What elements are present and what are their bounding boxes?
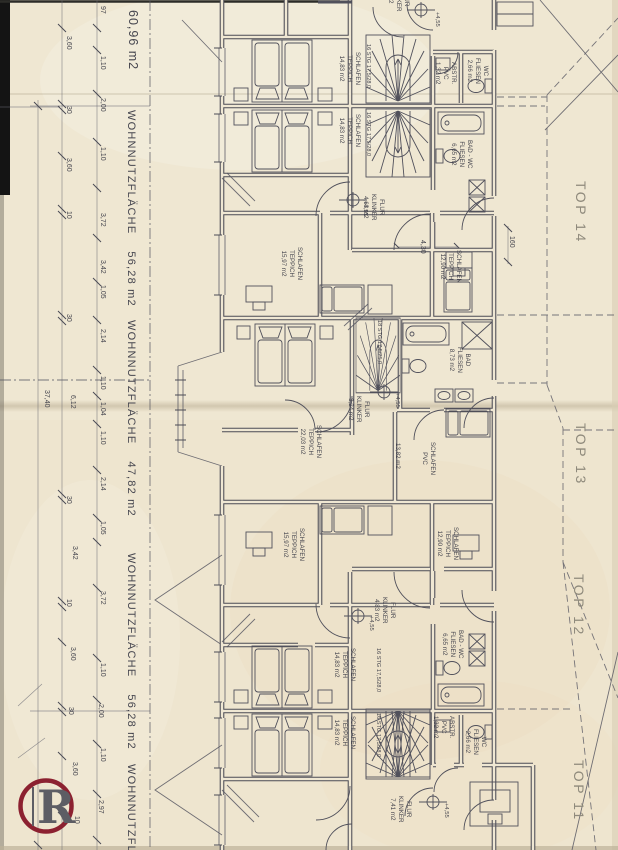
dim-30-a: 30 [64,106,73,114]
area-top: 60,96 m2 [125,10,142,70]
room-badwc-d: BAD - WC FLIESEN 6,65 m2 [439,630,464,659]
stairs-note-d: 16 STG 17,5/28,0 [374,648,381,692]
dim-110-c: 1,10 [98,376,107,390]
elev-b: +4,55 [360,201,368,216]
dim-214-b: 2,14 [98,477,107,491]
dim-104: 1,04 [98,402,107,416]
room-abstr-b: ABSTR. PVC 1,32 m2 [430,716,455,738]
elev-c: +4,55 [392,393,400,408]
elev-d: +4,55 [366,616,374,631]
dim-97: 97 [98,6,107,14]
room-flur-e: FLUR KLINKER 7,41 m2 [387,796,412,822]
room-schlafen-pvc: SCHLAFEN PVC [420,442,436,475]
dim-110-e: 1,10 [98,663,107,677]
dim-342-b: 3,42 [70,546,79,560]
dim-110-b: 1,10 [98,147,107,161]
dim-200-b: 2,00 [96,704,105,718]
dim-110-d: 1,10 [98,431,107,445]
room-wc-a: WC FLIESEN 2,66 m2 [464,58,489,84]
dim-342-a: 3,42 [98,260,107,274]
room-schlafen-c: SCHLAFEN TEPPICH 15,97 m2 [278,247,303,280]
dim-372-b: 3,72 [98,591,107,605]
room-schlafen-e: SCHLAFEN TEPPICH 22,03 m2 [297,425,322,458]
dim-10-b: 10 [64,599,73,607]
stairs-note-c: 18 STG 17,5/25,0 [375,320,382,364]
dim-200-a: 2,00 [98,98,107,112]
dim-105-b: 1,05 [98,521,107,535]
room-bad-c: BAD FLIESEN 8,73 m2 [446,347,471,373]
area-top14: WOHNNUTZFLÄCHE 56,28 m2 [123,110,138,307]
dim-110-f: 1,10 [98,748,107,762]
top-12: TOP 12 [570,574,588,637]
dim-360-a: 3,60 [64,36,73,50]
dim-30-d: 30 [66,707,75,715]
area-top13: WOHNNUTZFLÄCHE 47,82 m2 [123,320,138,517]
room-schlafen-h: SCHLAFEN TEPPICH 14,83 m2 [331,648,356,681]
elev-a: +4,55 [432,12,440,27]
dim-30-b: 30 [64,314,73,322]
elev-e: +4,55 [441,803,449,818]
area-1382: 13,82 m2 [393,443,401,469]
dim-372-a: 3,72 [98,213,107,227]
dim-360-b: 3,60 [64,158,73,172]
room-flur-c: FLUR KLINKER 3,24 m2 [345,396,370,422]
area-top11: WOHNNUTZFLÄCHE [123,764,138,850]
dim-214-a: 2,14 [98,329,107,343]
dim-3740: 37,40 [42,390,51,408]
stairs-note-e: 16 STG 17,5/28,0 [374,713,381,757]
dim-30-c: 30 [64,496,73,504]
room-schlafen-i: SCHLAFEN TEPPICH 14,83 m2 [331,716,356,749]
stairs-note-a: 16 STG 17,5/28,0 [364,44,371,88]
room-schlafen-b: SCHLAFEN TEPPICH 14,83 m2 [336,114,361,147]
room-schlafen-g: SCHLAFEN TEPPICH 15,97 m2 [280,528,305,561]
dim-360-c: 3,60 [68,647,77,661]
top-13: TOP 13 [572,423,590,486]
dim-10-c: 10 [72,816,81,824]
room-schlafen-d: SCHLAFEN TEPPICH 12,90 m2 [437,250,462,283]
area-top12: WOHNNUTZFLÄCHE 56,28 m2 [123,553,138,750]
scan-edge-dark [0,0,10,195]
dim-160: 160 [507,236,516,248]
room-abstr-a: ABSTR. PVC 1,32 m2 [432,62,457,84]
logo-letter: R [37,780,76,834]
scanned-floorplan-page: R 60,96 m2WOHNNUTZFLÄCHE 56,28 m2WOHNNUT… [0,0,618,850]
room-schlafen-f: SCHLAFEN TEPPICH 12,90 m2 [434,527,459,560]
room-flur-d: FLUR KLINKER 4,83 m2 [371,597,396,623]
room-badwc-b: BAD - WC FLIESEN 6,65 m2 [448,140,473,169]
dim-110-a: 1,10 [98,56,107,70]
dim-297: 2,97 [96,800,105,814]
dim-360-d: 3,60 [70,762,79,776]
dim-10-a: 10 [64,211,73,219]
room-wc-b: WC FLIESEN 2,66 m2 [462,729,487,755]
top-11: TOP 11 [570,760,588,822]
top-14: TOP 14 [572,181,590,244]
dim-612: 6,12 [68,395,77,409]
dim-105-a: 1,05 [98,285,107,299]
dim-430: 4,30 [418,240,427,254]
room-flur-cut: FLUR KLINKER m2 [385,0,410,11]
stairs-note-b: 16 STG 17,5/28,0 [364,112,371,156]
room-schlafen-a: SCHLAFEN TEPPICH 14,83 m2 [336,52,361,85]
